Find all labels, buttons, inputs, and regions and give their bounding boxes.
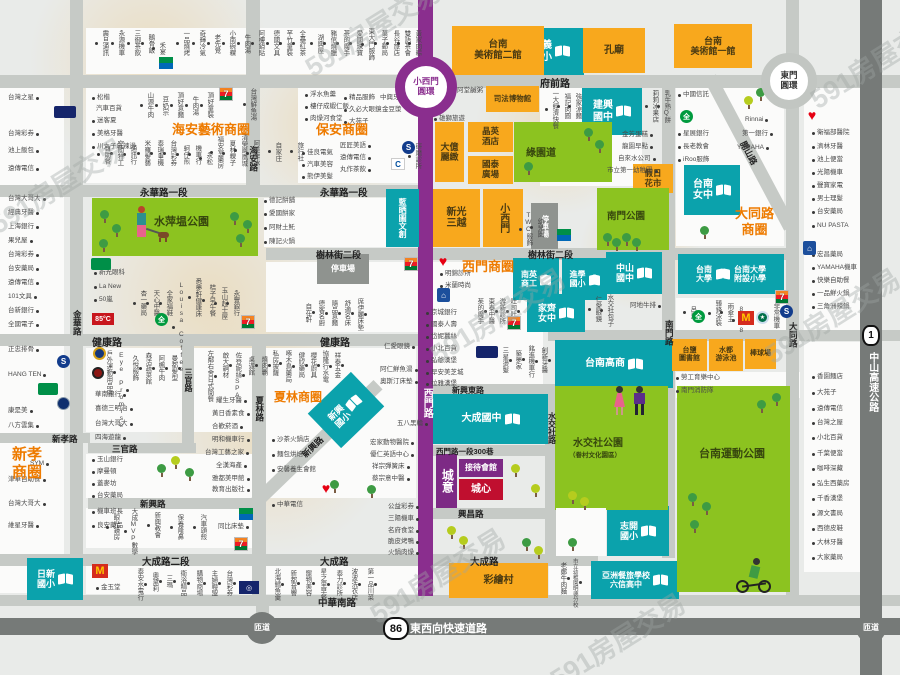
poi-dot — [338, 312, 341, 315]
poi-dot — [192, 42, 195, 45]
poi-label: Eye Promise — [117, 352, 129, 429]
seven-icon: 7 — [404, 257, 418, 271]
poi-dot — [242, 374, 245, 377]
poi-dot — [368, 169, 371, 172]
poi-dot — [812, 267, 815, 270]
poi-label: 遠傳電信 — [8, 280, 39, 287]
poi-label: 蓋麥坊 — [92, 481, 117, 488]
poi-dot — [812, 498, 815, 501]
seven-icon: 7 — [219, 87, 233, 101]
poi-label: 維星牙醫 — [8, 523, 39, 530]
red-label: 城心 — [471, 484, 491, 496]
orange-label: 小西門 — [497, 203, 509, 233]
poi-dot — [657, 105, 660, 108]
poi-dot — [305, 118, 308, 121]
poi-label: 佳良電氣 — [302, 150, 333, 157]
tree-icon — [757, 400, 766, 413]
cyclist-illustration — [736, 558, 782, 598]
poi-dot — [368, 145, 371, 148]
poi-label: 阿美作冰 — [246, 140, 258, 166]
poi-label: 戶外運動用品店 — [104, 350, 116, 396]
poi-label: 芊竹童裝 — [279, 30, 291, 56]
poi-label: 第一品川菜 — [365, 568, 377, 601]
poi-label: 上海銀行 — [8, 224, 39, 231]
poi-label: 池上便當 — [812, 157, 843, 164]
school-label: 日新 國小 — [37, 569, 55, 590]
poi-dot — [344, 109, 347, 112]
tree-icon — [99, 239, 108, 252]
poi-dot — [126, 389, 129, 392]
poi-label: 香園麵店 — [812, 374, 843, 381]
poi-label: 自來水公司 — [618, 156, 656, 163]
poi-label: 匠匠美語 — [340, 143, 371, 150]
park-title: 台南運動公園 — [699, 448, 765, 461]
poi-dot — [226, 302, 229, 305]
poi-label: 台新銀行 — [8, 308, 39, 315]
poi-dot — [302, 176, 305, 179]
poi-dot — [210, 151, 213, 154]
poi-label: 自家庄 — [268, 142, 280, 162]
book-icon — [641, 526, 656, 537]
poi-dot — [97, 153, 100, 156]
poi-dot — [247, 489, 250, 492]
poi-label: 安馨養生會館 — [272, 467, 316, 474]
road-label: 興昌路 — [458, 508, 484, 520]
poi-dot — [139, 367, 142, 370]
poi-dot — [416, 530, 419, 533]
poi-dot — [408, 42, 411, 45]
poi-dot — [152, 47, 155, 50]
poi-label: 自助餐 — [97, 145, 109, 165]
poi-label: 大林牙醫 — [812, 540, 843, 547]
tree-icon — [580, 497, 589, 510]
poi-dot — [509, 359, 512, 362]
orange-label: 國泰 廣場 — [482, 160, 499, 180]
poi-dot — [407, 478, 410, 481]
poi-label: 蚵仔煎 — [176, 145, 188, 165]
poi-dot — [349, 42, 352, 45]
poi-dot — [368, 157, 371, 160]
poi-label: 主婦聯盟 — [209, 570, 221, 596]
tree-icon — [185, 468, 194, 481]
poi-label: 金豆漿 — [382, 107, 402, 114]
orange-label: 孔廟 — [604, 45, 624, 57]
district-label: 西門商圈 — [462, 259, 514, 275]
tree-icon — [622, 233, 631, 246]
poi-label: 老鄭牛肉麵 — [558, 562, 570, 595]
poi-label: Rinnai — [745, 117, 768, 124]
poi-dot — [302, 152, 305, 155]
poi-label: 長老教會 — [678, 144, 709, 151]
poi-label: 小北百貨 — [426, 346, 457, 353]
poi-label: 久悅服飾 — [130, 355, 142, 381]
poi-label: 臻鋒泳裝 — [708, 300, 720, 326]
poi-label: 京城銀行 — [426, 310, 457, 317]
book-icon — [616, 106, 631, 117]
poi-label: 桌遊館 — [246, 356, 258, 376]
park-subtitle: （眷村文化園區） — [569, 452, 621, 459]
poi-dot — [36, 425, 39, 428]
poi-dot — [374, 42, 377, 45]
poi-dot — [732, 319, 735, 322]
poi-label: 福安堂藥房 — [210, 136, 222, 169]
tree-icon — [459, 536, 468, 549]
poi-dot — [407, 466, 410, 469]
poi-dot — [199, 157, 202, 160]
landmark-block: 棒球場 — [745, 339, 776, 369]
poi-label: 茶的魔手 — [336, 30, 348, 56]
coop-icon — [38, 383, 58, 395]
poi-dot — [43, 374, 46, 377]
road-horizontal — [88, 443, 196, 453]
poi-label: 永源機車 — [111, 30, 123, 56]
school-label: 大成國中 — [462, 413, 502, 425]
district-label: 海安藝術商圈 — [172, 122, 250, 138]
poi-dot — [766, 147, 769, 150]
poi-label: 德國文具 — [266, 30, 278, 56]
poi-label: 火鍋肉燥 — [388, 550, 419, 557]
poi-dot — [92, 525, 95, 528]
poi-dot — [43, 503, 46, 506]
poi-dot — [765, 119, 768, 122]
orange-label: 水都 游泳池 — [716, 347, 737, 363]
poi-dot — [812, 483, 815, 486]
poi-label: 合歡菸酒 — [212, 424, 243, 431]
poi-label: 玉山起士屋 — [214, 287, 226, 320]
poi-label: 德記餅舖 — [264, 198, 295, 205]
poi-dot — [426, 372, 429, 375]
poi-dot — [812, 225, 815, 228]
poi-label: 汽車美容 — [302, 162, 333, 169]
poi-label: 波波洗衣店 — [349, 568, 361, 601]
badge-icon — [93, 347, 106, 360]
poi-label: 阿財土魠 — [264, 225, 295, 232]
road-label: 西門路 — [419, 388, 434, 418]
orange-label: 司法博物館 — [494, 95, 532, 104]
poi-dot — [144, 583, 147, 586]
poi-label: 夏林粿子 — [222, 140, 234, 166]
poi-dot — [567, 577, 570, 580]
landmark-block: 國泰 廣場 — [468, 156, 513, 184]
poi-dot — [678, 159, 681, 162]
poi-dot — [36, 97, 39, 100]
school-label: 台南高商 — [585, 358, 625, 370]
poi-label: 星展銀行 — [678, 131, 709, 138]
poi-dot — [708, 312, 711, 315]
poi-label: 松楷 — [92, 95, 110, 102]
mcd-icon: M — [92, 564, 108, 578]
poi-label: 愛國珠寶 — [349, 30, 361, 56]
poi-label: 宏昌藥局 — [812, 252, 843, 259]
poi-label: 源文書局 — [812, 511, 843, 518]
bag-icon: ⌂ — [803, 241, 816, 255]
tree-icon — [534, 546, 543, 559]
poi-label: 三星燙髮 — [500, 347, 512, 373]
poi-dot — [264, 200, 267, 203]
poi-label: 泰安水電行 — [135, 568, 147, 601]
fam-icon — [557, 229, 571, 241]
map-canvas[interactable]: 府前路永華路一段永華路一段樹林街二段樹林街二段健康路健康路新興東路新孝路三官路新… — [0, 0, 900, 675]
sswirl-icon: S — [780, 305, 793, 318]
tree-icon — [612, 238, 621, 251]
poi-dot — [426, 324, 429, 327]
poi-label: 宏家動物醫院 — [370, 440, 414, 447]
poi-label: 台安藥局 — [8, 266, 39, 273]
poi-dot — [434, 118, 437, 121]
poi-label: 全國電子 — [8, 322, 39, 329]
poi-label: 新光眼科 — [94, 270, 125, 277]
book-icon — [716, 185, 731, 196]
poi-label: 果兒屋 — [8, 238, 33, 245]
poi-label: 雅都美甲館 — [212, 476, 250, 483]
px-icon: 全 — [680, 110, 693, 123]
poi-label: 明和機車行 — [212, 437, 250, 444]
poi-dot — [305, 106, 308, 109]
poi-label: 泰瑞重機 — [150, 140, 162, 166]
poi-label: 第一銀行 — [742, 131, 773, 138]
landmark-block: 彩繪村 — [449, 563, 548, 598]
poi-dot — [141, 42, 144, 45]
tree-icon — [584, 128, 593, 141]
poi-label: 寵物美容 — [303, 570, 315, 596]
poi-label: 衛浴精品 — [178, 570, 190, 596]
poi-label: 樓仔成蝦仁飯 — [305, 104, 349, 111]
parking-label: 停車場 — [331, 264, 355, 273]
poi-dot — [36, 349, 39, 352]
poi-label: 早安美芝城 — [426, 370, 464, 377]
tree-icon — [230, 212, 239, 225]
poi-dot — [133, 302, 136, 305]
poi-dot — [36, 226, 39, 229]
poi-label: 乳牛熟Q餅 — [657, 90, 669, 123]
poi-dot — [325, 312, 328, 315]
navycircle-icon — [57, 397, 70, 410]
poi-dot — [188, 153, 191, 156]
poi-label: 台灣彩券 — [8, 252, 39, 259]
orange-label: 晶英 酒店 — [482, 127, 499, 147]
poi-dot — [43, 479, 46, 482]
poi-dot — [92, 495, 95, 498]
poi-label: 弘生西藥房 — [812, 481, 850, 488]
school-block: 家齊 女中 — [527, 294, 585, 332]
school-block: 藍晒圖文創 — [386, 189, 419, 247]
poi-label: 祥宗彈簧床 — [372, 464, 410, 471]
poi-label: 協隆行水電 — [320, 350, 332, 383]
school-block: 大成國中 — [433, 394, 548, 444]
poi-label: 千香漢堡 — [812, 496, 843, 503]
poi-dot — [30, 410, 33, 413]
poi-dot — [165, 367, 168, 370]
poi-label: 大苑子 — [812, 390, 837, 397]
poi-label: 櫻花廚具 — [308, 352, 320, 378]
landmark-block: 台南 美術館二館 — [452, 26, 544, 75]
poi-label: 101文具 — [8, 294, 37, 301]
poi-dot — [264, 241, 267, 244]
poi-label: 公益彩券 — [388, 504, 419, 511]
road-label: 永華路一段 — [320, 185, 368, 199]
poi-label: 優仁英語中心 — [370, 452, 414, 459]
poi-label: La New — [94, 284, 121, 291]
poi-label: 黃家肉粽 — [408, 30, 420, 56]
tree-icon — [568, 538, 577, 551]
tree-icon — [236, 234, 245, 247]
poi-dot — [812, 211, 815, 214]
poi-dot — [579, 581, 582, 584]
poi-dot — [678, 133, 681, 136]
poi-label: 汽車百貨 — [96, 106, 122, 113]
district-label: 保安商圈 — [316, 122, 368, 138]
school-block: 台南 大學台南大學 附設小學 — [678, 254, 784, 294]
landmark-block: 司法博物館 — [486, 86, 539, 112]
poi-dot — [519, 228, 522, 231]
book-icon — [344, 394, 362, 412]
school-block: 亞洲餐旅學校 六信高中 — [591, 561, 679, 599]
poi-dot — [545, 108, 548, 111]
poi-dot — [272, 454, 275, 457]
heart-icon: ♥ — [318, 481, 334, 495]
poi-label: 50嵐 — [94, 297, 113, 304]
poi-dot — [163, 152, 166, 155]
poi-label: 岱妮蠶絲 — [426, 334, 457, 341]
poi-dot — [193, 526, 196, 529]
poi-dot — [812, 422, 815, 425]
poi-dot — [36, 525, 39, 528]
poi-dot — [124, 530, 127, 533]
poi-dot — [415, 369, 418, 372]
poi-label: 天心中醫 — [146, 290, 158, 316]
poi-dot — [312, 582, 315, 585]
poi-label: 私房披薩 — [270, 350, 282, 376]
poi-label: 一大經濟快餐 — [545, 90, 557, 129]
school-label: 中山 國中 — [616, 263, 634, 284]
landmark-block: 台鹽 圖書館 — [672, 339, 707, 371]
district-label: 夏林商圈 — [274, 390, 322, 404]
purple-label: 城意 — [440, 469, 454, 493]
tree-icon — [595, 140, 604, 153]
school-block: 台南高商 — [555, 340, 673, 388]
poi-label: 精品服飾 — [344, 95, 375, 102]
poi-dot — [229, 364, 232, 367]
book-icon — [58, 574, 73, 585]
road-label: 中山高速公路 — [865, 352, 880, 412]
poi-label: 龍園早點 — [622, 144, 653, 151]
road-label: 大成路 — [320, 554, 349, 568]
district-label: 新孝 商圈 — [12, 446, 42, 482]
seven-icon: 7 — [234, 537, 248, 551]
poi-dot — [92, 471, 95, 474]
orange-label: 大億 麗緻 — [440, 142, 458, 163]
poi-label: 大成MVP數學 — [124, 508, 136, 555]
poi-label: 三陽機車 — [388, 516, 419, 523]
poi-dot — [812, 132, 815, 135]
poi-label: 台灣彩券 — [224, 570, 236, 596]
poi-dot — [522, 358, 525, 361]
poi-label: 中國信託 — [678, 92, 709, 99]
poi-dot — [812, 557, 815, 560]
poi-dot — [411, 442, 414, 445]
poi-dot — [426, 312, 429, 315]
park-title: 南門公園 — [607, 212, 645, 223]
poi-dot — [243, 103, 246, 106]
poi-dot — [411, 454, 414, 457]
school-label: 建興 國中 — [593, 100, 613, 123]
poi-dot — [46, 463, 49, 466]
poi-label: 台安藥局 — [812, 209, 843, 216]
poi-dot — [92, 483, 95, 486]
poi-label: 新都音響 — [288, 570, 300, 596]
poi-label: 男士理髮 — [812, 196, 843, 203]
poi-dot — [34, 296, 37, 299]
poi-dot — [222, 42, 225, 45]
road-label: 三官路 — [112, 443, 138, 455]
poi-label: 三角洲辣鍋 — [812, 304, 850, 311]
poi-dot — [426, 360, 429, 363]
tree-icon — [522, 538, 531, 551]
poi-label: 老先覺 — [207, 34, 219, 54]
poi-dot — [94, 299, 97, 302]
school-block: 中山 國中 — [606, 252, 662, 294]
poi-dot — [812, 408, 815, 411]
poi-dot — [203, 582, 206, 585]
book-icon — [653, 575, 668, 586]
book-icon — [540, 275, 551, 283]
landmark-block: 孔廟 — [583, 28, 645, 73]
book-icon — [555, 46, 570, 57]
poi-label: 台灣之屋 — [812, 420, 843, 427]
poi-dot — [266, 42, 269, 45]
poi-dot — [600, 309, 603, 312]
poi-label: 購物商場 — [194, 570, 206, 596]
poi-dot — [416, 541, 419, 544]
poi-label: 拉雅漢堡 — [426, 381, 457, 388]
poi-dot — [110, 152, 113, 155]
orange-label: 台南 美術館二館 — [474, 40, 522, 62]
poi-label: 台灣彩券 — [8, 131, 39, 138]
poi-label: 蔡宗意中醫 — [372, 476, 410, 483]
roundabout: 東門 圓環 — [761, 53, 817, 109]
poi-dot — [268, 150, 271, 153]
road-label: 南門路 — [663, 320, 675, 346]
heart-icon: ♥ — [435, 254, 451, 268]
poi-label: 耀生牙醫 — [216, 398, 247, 405]
poi-dot — [416, 518, 419, 521]
poi-label: 遠傳電信 — [812, 406, 843, 413]
book-icon — [637, 268, 652, 279]
road-label: 大成路二段 — [142, 554, 190, 568]
poi-dot — [676, 390, 679, 393]
poi-dot — [292, 365, 295, 368]
poi-label: 遠傳電信 — [8, 166, 39, 173]
tree-icon — [367, 485, 376, 498]
poi-dot — [351, 312, 354, 315]
poi-dot — [397, 42, 400, 45]
poi-dot — [95, 42, 98, 45]
poi-label: 湖興屋 — [310, 34, 322, 54]
poi-dot — [185, 104, 188, 107]
poi-label: 四海遊龍 — [95, 435, 126, 442]
poi-label: 阿楓牛肉 — [156, 355, 168, 381]
poi-label: 阿樓鍋貼 — [251, 30, 263, 56]
poi-label: 創新牙醫 — [539, 347, 551, 373]
poi-dot — [43, 198, 46, 201]
poi-dot — [812, 293, 815, 296]
poi-label: 通訊行 — [123, 145, 135, 165]
poi-dot — [683, 311, 686, 314]
poi-dot — [650, 146, 653, 149]
poi-label: 西德皮鞋 — [812, 526, 843, 533]
poi-dot — [530, 226, 533, 229]
poi-label: 席伊麗床墊 — [355, 298, 367, 331]
